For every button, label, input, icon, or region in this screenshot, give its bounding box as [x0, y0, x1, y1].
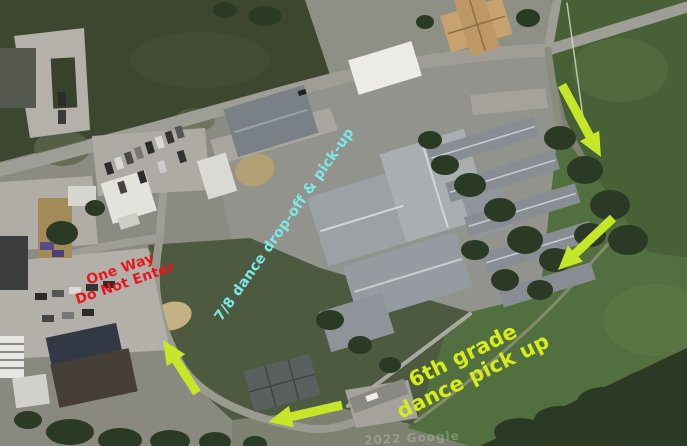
route-arrows: [0, 0, 687, 446]
annotated-satellite-map: One WayDo Not Enter7/8 dance drop-off & …: [0, 0, 687, 446]
annotation-layer: One WayDo Not Enter7/8 dance drop-off & …: [0, 0, 687, 446]
arrow-west-loop: [163, 340, 201, 395]
arrow-northeast-entrance: [558, 83, 601, 157]
arrow-south-loop: [268, 401, 343, 428]
arrow-east-drive: [558, 215, 616, 270]
